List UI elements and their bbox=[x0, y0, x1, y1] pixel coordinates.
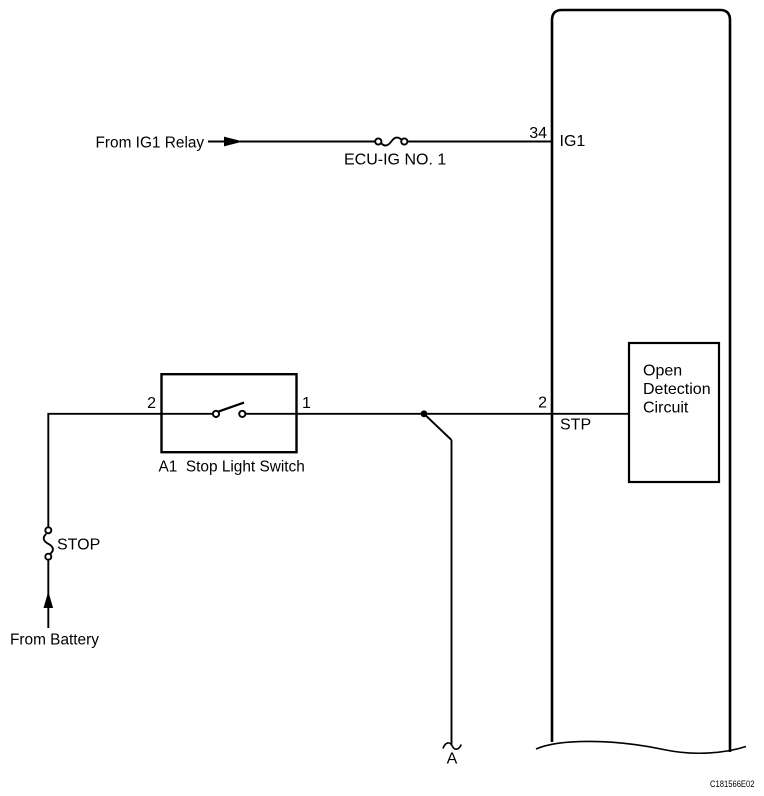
svg-text:34: 34 bbox=[529, 125, 547, 142]
svg-text:A: A bbox=[447, 751, 458, 768]
svg-text:2: 2 bbox=[147, 395, 156, 412]
svg-text:A1 Stop Light Switch: A1 Stop Light Switch bbox=[159, 459, 305, 476]
svg-text:Circuit: Circuit bbox=[643, 400, 689, 417]
svg-text:Open: Open bbox=[643, 363, 682, 380]
svg-text:STOP: STOP bbox=[57, 537, 100, 554]
svg-text:From IG1 Relay: From IG1 Relay bbox=[96, 135, 205, 152]
svg-text:C181566E02: C181566E02 bbox=[710, 779, 755, 789]
svg-text:Detection: Detection bbox=[643, 381, 711, 398]
svg-text:2: 2 bbox=[538, 395, 547, 412]
svg-text:IG1: IG1 bbox=[560, 133, 586, 150]
svg-text:STP: STP bbox=[560, 417, 591, 434]
svg-text:ECU-IG NO. 1: ECU-IG NO. 1 bbox=[344, 152, 446, 169]
svg-text:1: 1 bbox=[302, 395, 311, 412]
svg-text:From Battery: From Battery bbox=[10, 632, 99, 649]
